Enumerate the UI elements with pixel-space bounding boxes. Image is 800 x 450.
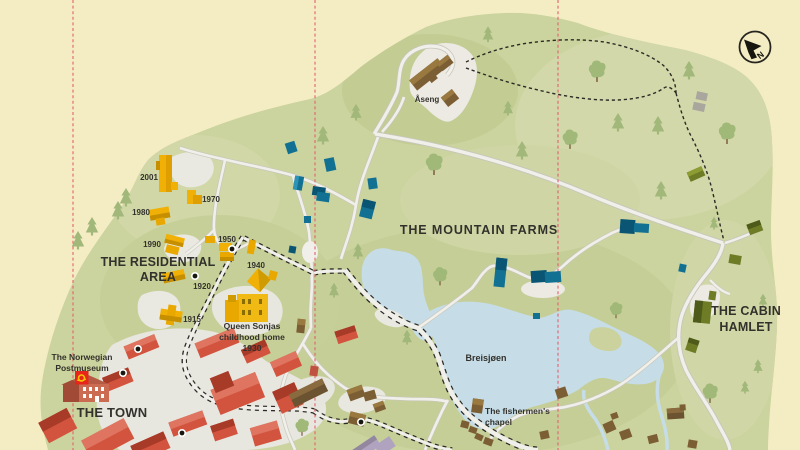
svg-text:Breisjøen: Breisjøen (465, 353, 506, 363)
svg-text:THE CABIN: THE CABIN (711, 304, 781, 318)
svg-text:AREA: AREA (140, 270, 176, 284)
svg-text:1990: 1990 (143, 240, 161, 249)
svg-text:The fishermen's: The fishermen's (485, 406, 550, 416)
svg-text:Åseng: Åseng (415, 95, 440, 104)
svg-text:chapel: chapel (485, 417, 512, 427)
svg-text:1920: 1920 (193, 282, 211, 291)
svg-text:childhood home: childhood home (219, 332, 285, 342)
svg-text:1980: 1980 (132, 208, 150, 217)
svg-text:1940: 1940 (247, 261, 265, 270)
svg-text:HAMLET: HAMLET (719, 320, 772, 334)
svg-text:1970: 1970 (202, 195, 220, 204)
svg-text:1950: 1950 (218, 235, 236, 244)
svg-text:1915: 1915 (183, 315, 201, 324)
svg-text:THE RESIDENTIAL: THE RESIDENTIAL (101, 255, 216, 269)
svg-text:Postmuseum: Postmuseum (55, 363, 109, 373)
svg-text:THE TOWN: THE TOWN (77, 405, 148, 420)
svg-text:The Norwegian: The Norwegian (52, 352, 113, 362)
svg-text:Queen Sonjas: Queen Sonjas (224, 321, 281, 331)
svg-text:2001: 2001 (140, 173, 158, 182)
svg-text:THE MOUNTAIN FARMS: THE MOUNTAIN FARMS (400, 223, 558, 237)
svg-text:1930: 1930 (243, 343, 262, 353)
